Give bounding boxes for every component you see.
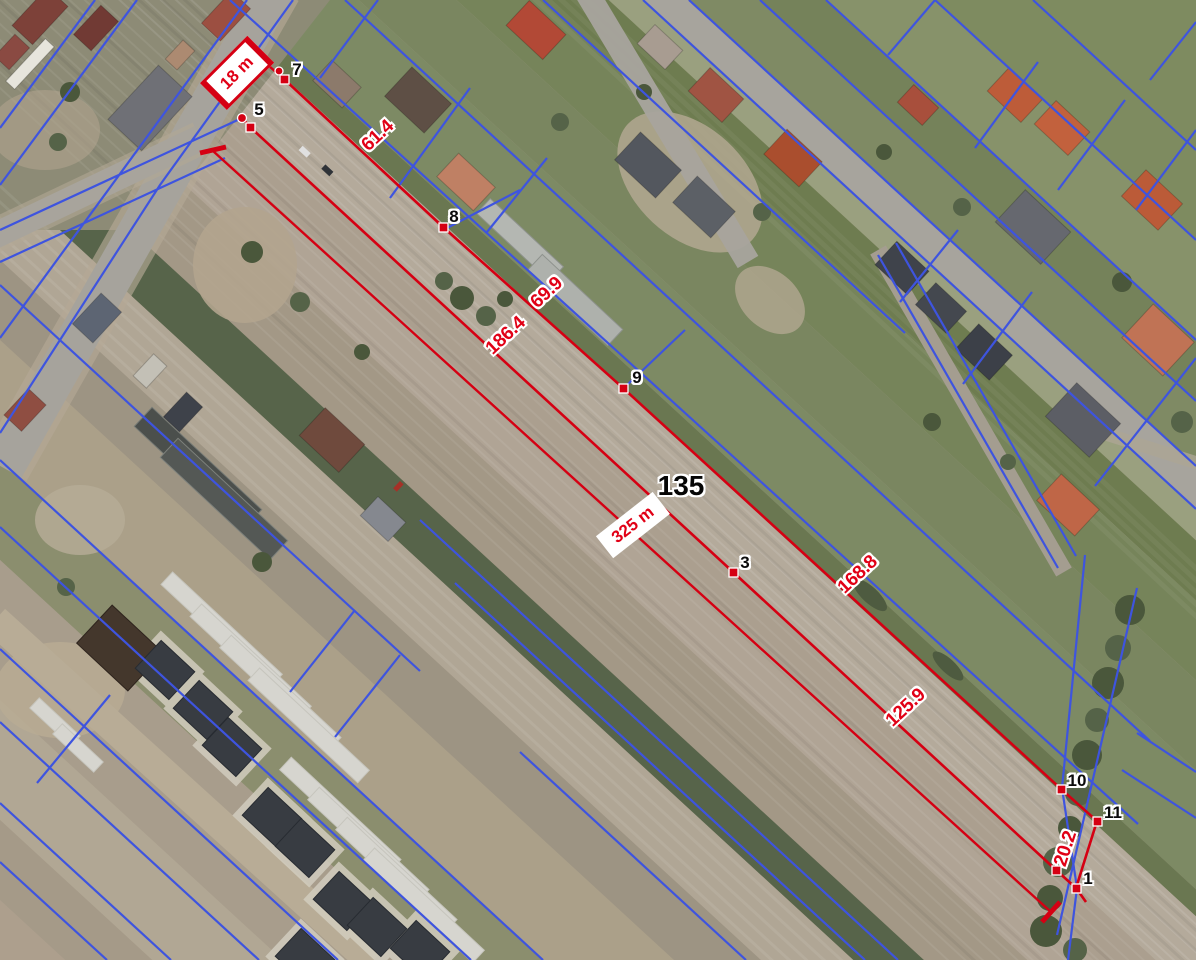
vertex-number-label: 11	[1104, 803, 1122, 823]
vertex-number-label: 9	[632, 368, 641, 388]
vertex-marker-5[interactable]	[246, 123, 255, 132]
vertex-number-label: 3	[740, 553, 749, 573]
vertex-marker-7[interactable]	[280, 75, 289, 84]
vertex-marker-2[interactable]	[1052, 866, 1061, 875]
vertex-number-label: 7	[292, 60, 301, 80]
vertex-number-label: 8	[449, 207, 458, 227]
vertex-marker-dot[interactable]	[238, 114, 247, 123]
parcel-number-label: 135	[658, 470, 705, 502]
aerial-map-canvas[interactable]: 18 m 325 m 135 61.4 69.9 186.4 168.8 125…	[0, 0, 1196, 960]
vertex-marker-3[interactable]	[729, 568, 738, 577]
aerial-basemap	[0, 0, 1196, 960]
vertex-marker-9[interactable]	[619, 384, 628, 393]
vertex-marker-10[interactable]	[1057, 785, 1066, 794]
vertex-number-label: 10	[1068, 771, 1087, 791]
vertex-marker-dot[interactable]	[275, 67, 283, 75]
vertex-marker-8[interactable]	[439, 223, 448, 232]
vertex-number-label: 1	[1083, 869, 1092, 889]
vertex-number-label: 5	[254, 100, 263, 120]
vertex-marker-1[interactable]	[1072, 884, 1081, 893]
vertex-marker-11[interactable]	[1093, 817, 1102, 826]
